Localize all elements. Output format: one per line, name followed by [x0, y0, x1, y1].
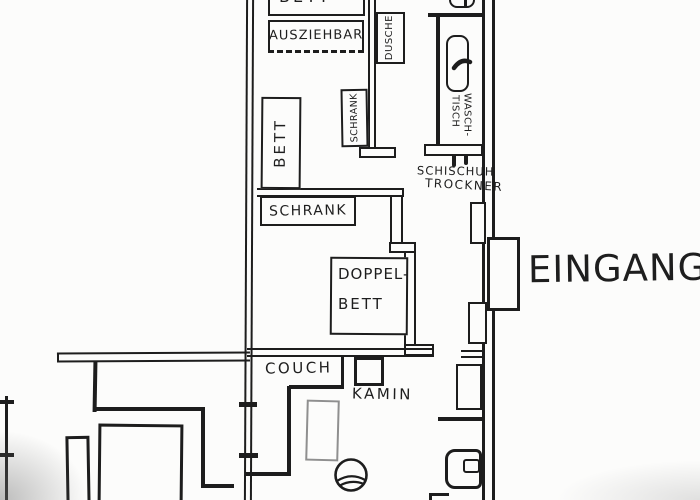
bottomleft-bed-large [98, 424, 184, 500]
photo-shadow-bottom-right [555, 460, 700, 500]
pullout-bed-label: AUSZIEHBAR [269, 29, 363, 43]
fireplace-label: KAMIN [352, 386, 413, 403]
washstand-label-line1: WASCH- [461, 93, 472, 137]
bed-side-label: BETT [273, 118, 289, 168]
wall-bedroom-right-upper [390, 196, 403, 244]
round-stool [332, 456, 370, 494]
entrance-door [487, 237, 520, 311]
couch-edge-left-bottom [246, 472, 289, 476]
toilet-shelf-line [438, 417, 482, 421]
entrance-label: EINGANG [528, 249, 700, 290]
double-bed-label-line1: DOPPEL- [338, 267, 409, 283]
couch-label: COUCH [265, 360, 333, 377]
wardrobe-side-box: SCHRANK [340, 89, 368, 147]
bed-side-box: BETT [261, 97, 302, 189]
shower-box: DUSCHE [376, 12, 405, 64]
fixture-top-cutoff-mark [464, 0, 467, 6]
wall-left-stub [5, 396, 8, 500]
couch-edge-bottom [289, 385, 344, 389]
fireplace-box [354, 357, 384, 386]
wall-left-outer [244, 0, 254, 500]
faucet-icon [451, 53, 477, 73]
toilet-flush-handle [463, 459, 480, 473]
fixture-bottom-cutoff-h [429, 493, 449, 496]
wardrobe-side-label: SCHRANK [349, 93, 360, 143]
double-bed-label-line2: BETT [338, 297, 384, 313]
floor-plan: EINGANG DUSCHE WASCH- TISCH SCHISCHUH TR… [0, 0, 700, 500]
wall-left-stub-tick2 [0, 453, 14, 457]
entrance-frame-upper [470, 202, 486, 244]
wardrobe-box: SCHRANK [260, 196, 356, 226]
wall-left-tick2 [239, 453, 258, 458]
washstand-counter-left [436, 16, 440, 147]
wall-partition-v2 [201, 407, 205, 488]
wall-partition-v1 [93, 362, 97, 412]
wall-partition-h1 [93, 407, 204, 411]
wall-bottomleft-top [57, 351, 250, 362]
radiator-lower [456, 364, 482, 410]
wall-living-top-right-piece [461, 350, 482, 358]
washstand-label-line2: TISCH [449, 95, 460, 127]
wall-bathroom-left [368, 0, 376, 149]
bottomleft-bed-narrow [65, 436, 90, 500]
wall-left-tick1 [239, 402, 257, 407]
coffee-table [305, 400, 340, 462]
wardrobe-label: SCHRANK [269, 203, 347, 219]
bootdryer-shelf [424, 144, 483, 156]
wall-living-top [247, 348, 434, 357]
wall-left-stub-tick1 [0, 400, 14, 404]
fixture-top-cutoff [449, 0, 475, 8]
bed-top-label: BETT [279, 0, 331, 6]
bootdryer-label-line2: TROCKNER [425, 177, 504, 194]
couch-edge-left-seat [287, 386, 291, 476]
shower-label: DUSCHE [385, 15, 396, 60]
entrance-frame-lower [468, 302, 487, 344]
wall-bathroom-left-endcap [359, 147, 396, 158]
wall-partition-h2 [201, 484, 234, 488]
pullout-bed-box: AUSZIEHBAR [268, 20, 364, 53]
